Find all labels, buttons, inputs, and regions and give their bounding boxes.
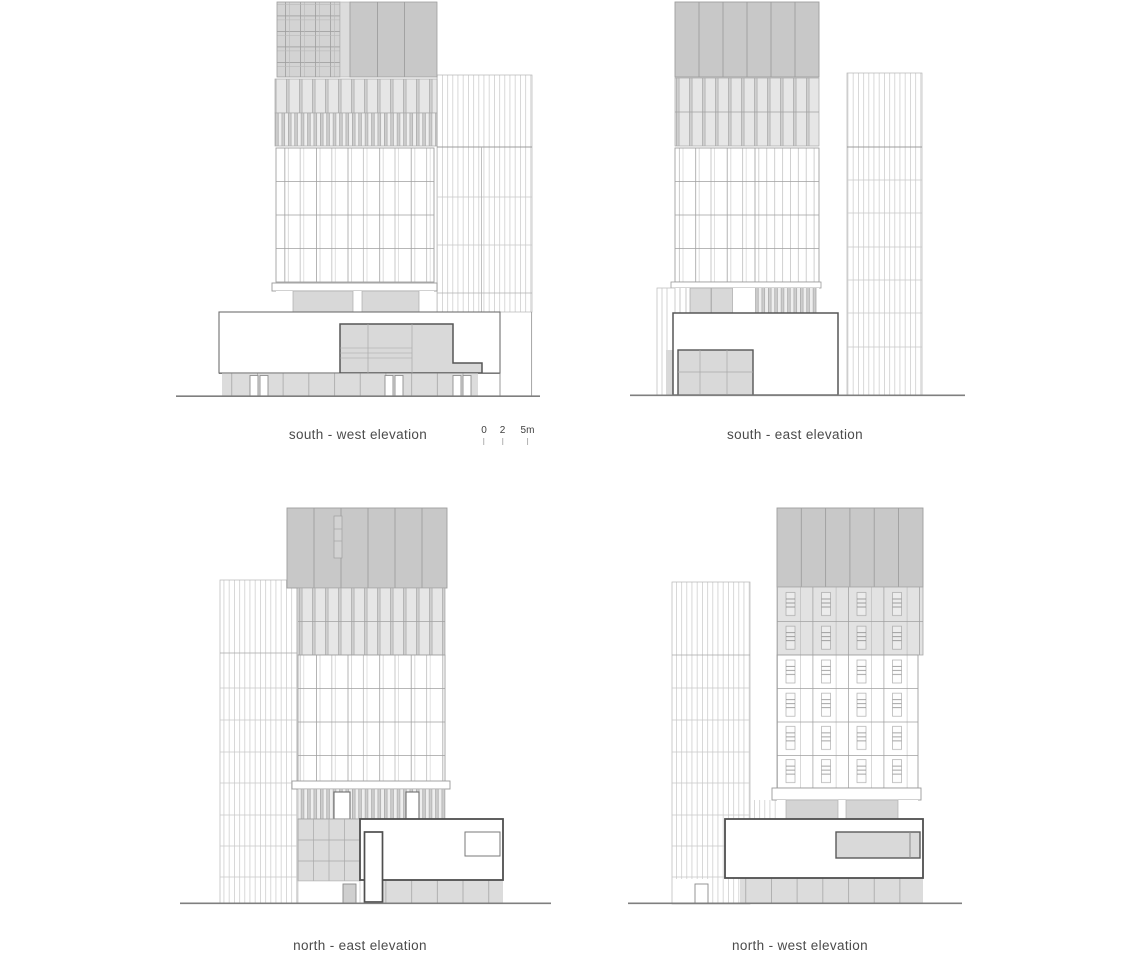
sw-slab-band — [272, 283, 437, 291]
se-rooftop-plant-block — [675, 2, 819, 77]
se-background-tower — [847, 73, 922, 395]
ne-louvre-band — [298, 789, 445, 819]
nw-curtain-wall-floors — [777, 655, 918, 788]
se-curtain-wall-floors — [675, 148, 819, 282]
elevation-sheet: south - west elevation south - east elev… — [0, 0, 1140, 956]
north-west-elevation-label: north - west elevation — [732, 938, 868, 953]
ne-rooftop-plant-block — [287, 508, 447, 588]
north-east-elevation-drawing — [180, 508, 551, 903]
north-east-elevation-label: north - east elevation — [293, 938, 427, 953]
south-east-elevation-drawing — [630, 2, 965, 395]
nw-podium-gray-window — [836, 832, 920, 858]
nw-slab-band — [772, 788, 921, 800]
south-west-elevation-label: south - west elevation — [289, 427, 427, 442]
se-podium-gray-volume — [678, 350, 753, 395]
ne-upper-facade-band — [298, 588, 445, 655]
nw-ground-floor — [740, 878, 923, 903]
ne-door-opening — [406, 792, 419, 819]
south-west-elevation-drawing — [176, 2, 540, 396]
nw-side-door — [695, 884, 708, 903]
se-column-floor — [675, 288, 819, 313]
ne-curtain-wall-floors — [298, 655, 445, 788]
ne-door-opening — [334, 792, 350, 819]
nw-link-strip — [752, 800, 777, 819]
ne-background-tower — [220, 580, 297, 903]
sw-rooftop-plant-block — [277, 2, 437, 77]
ne-podium-column — [365, 832, 383, 902]
nw-column-floor — [777, 800, 918, 819]
se-slab-band — [671, 282, 821, 288]
nw-upper-facade-band — [777, 587, 923, 655]
sw-curtain-wall-floors — [276, 148, 434, 282]
sw-column-floor — [276, 291, 434, 312]
sw-louvre-band — [275, 113, 437, 146]
ne-ground-floor — [383, 880, 503, 903]
elevations-drawing — [0, 0, 1140, 956]
sw-ground-floor — [222, 374, 500, 397]
sw-upper-facade-band — [275, 79, 437, 113]
ne-podium-window — [465, 832, 500, 856]
ne-slab-band — [292, 781, 450, 789]
nw-rooftop-plant-block — [777, 508, 923, 587]
ne-side-door — [343, 884, 356, 903]
se-upper-facade-band — [675, 78, 819, 146]
north-west-elevation-drawing — [628, 508, 962, 904]
south-east-elevation-label: south - east elevation — [727, 427, 863, 442]
ne-podium-grid-block — [298, 819, 360, 903]
